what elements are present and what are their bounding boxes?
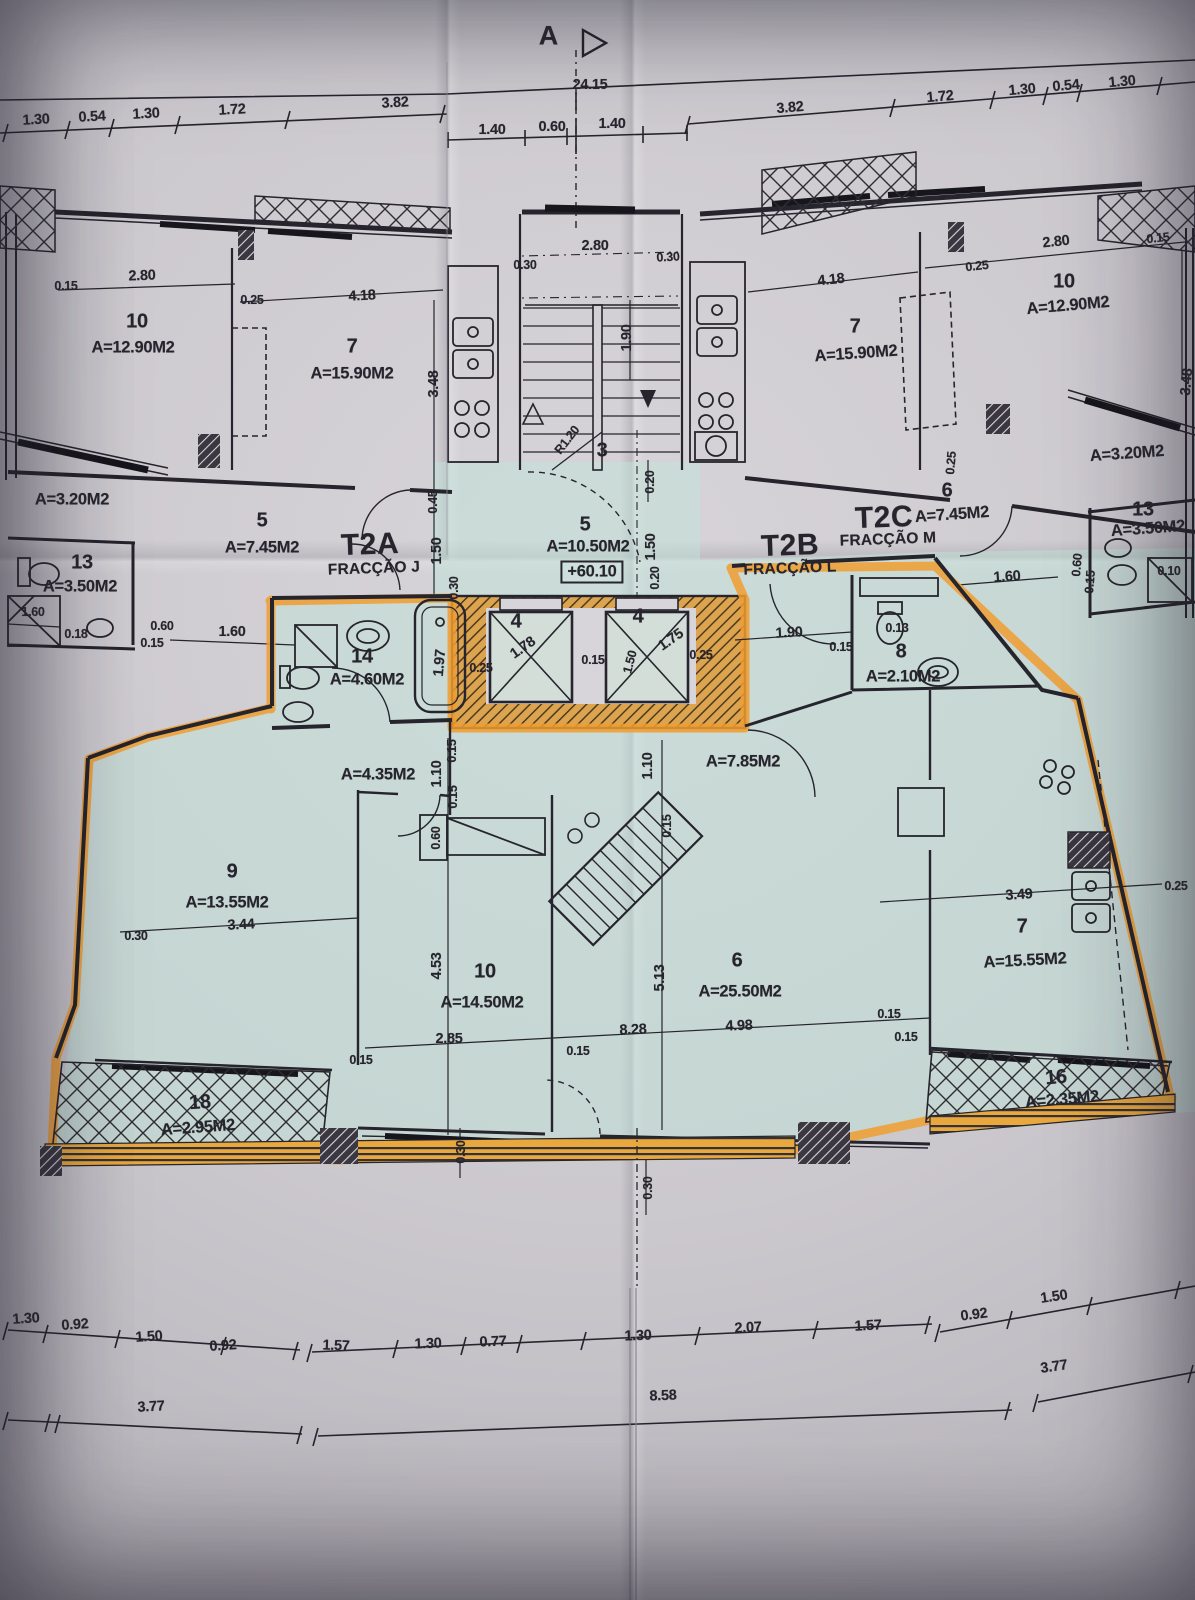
unit-fraction: FRACÇÃO L: [743, 558, 837, 579]
dim-label: 1.60: [993, 568, 1021, 586]
room-number: 7: [850, 316, 861, 339]
dim-label: 0.20: [648, 566, 662, 589]
dim-label: 1.50: [429, 537, 445, 564]
dim-label: 1.57: [854, 1317, 882, 1334]
room-number: 4: [511, 611, 522, 634]
column-hatch: [986, 404, 1010, 434]
room-number: 14: [351, 646, 373, 669]
dim-label: 0.15: [581, 653, 604, 667]
dim-label: 0.30: [447, 576, 461, 599]
room-area: A=13.55M2: [185, 894, 268, 913]
dim-label: 4.98: [725, 1018, 753, 1035]
dim-label: 1.30: [12, 1310, 40, 1328]
dim-label: 0.60: [429, 826, 443, 849]
dim-label: 1.10: [640, 752, 656, 779]
kitchen-right-icons: [690, 262, 745, 462]
room-area: A=3.20M2: [35, 491, 109, 510]
room-area: A=25.50M2: [698, 983, 781, 1002]
room-number: 18: [188, 1091, 211, 1115]
dim-label: 0.15: [660, 814, 674, 837]
kitchen-left-icons: [448, 266, 498, 462]
dim-label: 5.13: [652, 964, 668, 991]
dim-label: 0.20: [643, 470, 657, 493]
dim-label: 0.25: [240, 293, 263, 307]
dim-label: 0.25: [469, 661, 492, 675]
dim-label: 0.30: [656, 249, 680, 264]
dim-label: 0.92: [61, 1316, 89, 1334]
dim-label: 0.92: [209, 1337, 237, 1355]
unit-fraction: FRACÇÃO J: [328, 558, 421, 579]
closet-dashed: [900, 292, 956, 430]
dim-label: 4.18: [348, 287, 376, 304]
room-number: 9: [227, 861, 238, 884]
dim-label: 0.15: [349, 1053, 372, 1067]
top-dimension-lines: [0, 60, 1195, 154]
dim-label: 0.15: [829, 640, 852, 654]
dim-label: 3.82: [381, 94, 409, 111]
dim-label: 1.72: [926, 88, 954, 106]
dim-label: 2.80: [128, 268, 156, 285]
dim-label: 0.18: [64, 627, 87, 641]
dim-label: 0.13: [885, 621, 908, 635]
dim-label: 8.58: [649, 1388, 677, 1405]
dim-label: 0.77: [479, 1334, 507, 1351]
room-number: 6: [732, 950, 743, 973]
stove-icon: [699, 393, 713, 407]
column-hatch: [320, 1128, 358, 1164]
dim-label: 1.30: [414, 1336, 442, 1353]
dim-label: 3.82: [776, 99, 804, 117]
dim-label: 0.30: [124, 929, 147, 943]
column-hatch: [948, 222, 964, 252]
dim-label: 1.60: [218, 624, 245, 640]
room-area: A=15.90M2: [310, 365, 393, 384]
dim-label: 1.30: [1108, 73, 1136, 91]
dim-label: 0.60: [1069, 553, 1085, 577]
floor-plan-photo: A 24.15 1.30 0.54 1.30 1.72 3.82 1.40 0.…: [0, 0, 1195, 1600]
dim-label: 1.90: [619, 324, 635, 351]
room-area: A=10.50M2: [546, 538, 629, 557]
room-area: A=14.50M2: [440, 994, 523, 1013]
dim-label: 2.85: [435, 1031, 462, 1047]
column-hatch: [198, 434, 220, 468]
dim-label: 4.53: [429, 952, 445, 979]
dim-label: 0.15: [877, 1007, 900, 1021]
balcony-hatch: [762, 152, 916, 234]
dim-label: 1.40: [598, 116, 625, 132]
section-marker: A: [539, 21, 560, 52]
unit-fraction: FRACÇÃO M: [839, 529, 936, 550]
room-number: 6: [942, 480, 953, 503]
unit-code: T2A: [340, 527, 399, 563]
room-number: 16: [1044, 1066, 1068, 1091]
dim-label: 1.97: [431, 649, 449, 677]
column-hatch: [40, 1146, 62, 1176]
room-number: 5: [257, 510, 268, 533]
dim-label: 0.25: [943, 451, 959, 475]
dim-label: 0.15: [54, 279, 77, 293]
dim-label: 1.60: [21, 605, 44, 619]
bathroom-13-left-fixtures: [8, 558, 113, 646]
dim-label: 0.30: [454, 1140, 468, 1163]
dim-label: 8.28: [619, 1022, 647, 1039]
window-bar: [18, 442, 148, 470]
dim-label: 1.30: [132, 105, 160, 122]
room-number: 13: [71, 552, 93, 575]
room-number: 8: [896, 641, 907, 664]
room-area: A=7.45M2: [225, 539, 299, 558]
dim-label: 1.57: [322, 1338, 350, 1355]
balcony-hatch: [255, 196, 450, 232]
dim-label: 0.60: [538, 119, 565, 135]
dim-label: 1.90: [775, 624, 803, 641]
room-number: 3: [597, 440, 608, 463]
dim-label: 0.92: [960, 1305, 989, 1324]
elevation-badge: +60.10: [560, 561, 623, 584]
room-area: A=7.85M2: [706, 753, 780, 772]
dim-label: 1.50: [135, 1328, 163, 1346]
dim-label: 0.25: [965, 258, 989, 274]
dim-label: 3.77: [137, 1398, 165, 1415]
dim-label: 0.54: [1052, 77, 1080, 95]
column-hatch: [798, 1122, 850, 1164]
dim-label: 0.30: [641, 1176, 655, 1199]
dim-label: 3.44: [227, 916, 255, 933]
stair-arrow-down-icon: [640, 390, 656, 408]
sink-icon: [87, 619, 113, 637]
dim-label: 1.72: [218, 101, 246, 118]
room-area: A=4.35M2: [341, 766, 415, 785]
dim-label: 1.50: [643, 533, 659, 560]
room-number: 4: [633, 606, 644, 629]
dim-label: 3.48: [426, 370, 442, 397]
dim-label: 24.15: [573, 77, 608, 93]
dim-label: 0.25: [1164, 879, 1187, 893]
dim-label: 1.30: [624, 1328, 652, 1345]
dim-label: 0.15: [566, 1044, 589, 1058]
room-number: 10: [1053, 271, 1075, 294]
room-number: 5: [580, 514, 591, 537]
dim-label: 0.60: [150, 619, 173, 633]
dim-label: 0.15: [446, 785, 460, 808]
dim-label: 3.49: [1005, 886, 1033, 904]
dim-label: 1.30: [1008, 81, 1036, 99]
room-number: 7: [347, 336, 358, 359]
dim-label: 0.10: [1157, 564, 1180, 578]
dim-label: 0.15: [1146, 230, 1170, 246]
balcony-hatch: [0, 186, 55, 252]
shower-icon: [8, 596, 60, 646]
dim-label: 3.48: [1178, 368, 1195, 396]
dim-label: 2.80: [581, 238, 608, 254]
dim-label: 0.15: [1082, 570, 1098, 594]
column-hatch: [238, 230, 254, 260]
dim-label: 0.15: [894, 1030, 917, 1044]
dim-label: 0.15: [140, 636, 163, 650]
dim-label: 2.80: [1042, 233, 1071, 252]
stair-arrow-up-icon: [523, 404, 543, 424]
dim-label: 1.30: [22, 111, 50, 128]
dim-label: 0.30: [513, 258, 536, 272]
room-area: A=3.50M2: [43, 578, 117, 597]
room-area: A=12.90M2: [91, 339, 174, 358]
dim-label: 4.18: [817, 271, 846, 290]
room-area: A=4.60M2: [330, 671, 404, 690]
dim-label: 0.15: [445, 739, 459, 762]
room-number: 7: [1017, 916, 1028, 939]
room-number: 10: [474, 961, 496, 984]
room-number: 10: [126, 311, 148, 334]
section-arrow-icon: [583, 30, 606, 56]
dim-label: 0.25: [689, 648, 712, 662]
washer-icon: [706, 436, 726, 456]
window-bar: [545, 208, 635, 210]
dim-label: 0.45: [426, 490, 440, 513]
room-number: 13: [1132, 499, 1154, 522]
dim-label: 1.10: [429, 760, 445, 787]
window-bar: [1085, 400, 1180, 428]
dim-label: 1.40: [478, 122, 505, 138]
dim-label: 0.54: [78, 108, 106, 125]
room-area: A=2.10M2: [866, 668, 940, 687]
bottom-dimension-lines: [3, 1281, 1195, 1446]
stove-icon: [455, 401, 469, 415]
closet-dashed: [232, 328, 266, 436]
dim-label: 2.07: [734, 1319, 762, 1336]
